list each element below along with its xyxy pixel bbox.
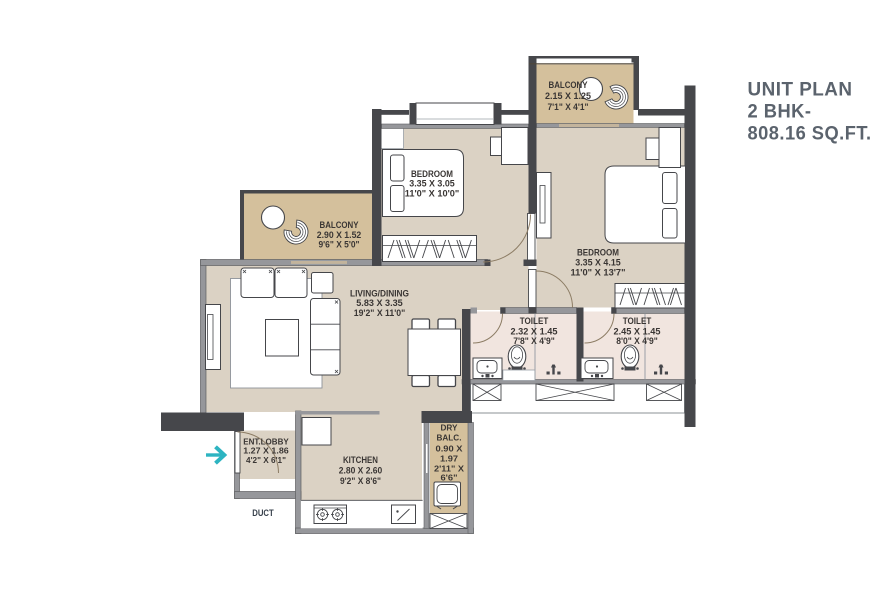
svg-text:11'0" X 10'0": 11'0" X 10'0" xyxy=(405,189,460,199)
svg-text:3.35 X 3.05: 3.35 X 3.05 xyxy=(409,179,455,189)
svg-text:2.90 X 1.52: 2.90 X 1.52 xyxy=(317,230,362,240)
svg-text:BEDROOM: BEDROOM xyxy=(411,169,453,179)
svg-text:BEDROOM: BEDROOM xyxy=(577,248,619,258)
svg-text:5.83 X 3.35: 5.83 X 3.35 xyxy=(356,298,403,308)
svg-text:1.97: 1.97 xyxy=(440,454,458,464)
svg-text:LIVING/DINING: LIVING/DINING xyxy=(350,289,409,299)
svg-text:2.15 X 1.25: 2.15 X 1.25 xyxy=(545,91,591,101)
svg-text:DUCT: DUCT xyxy=(252,508,274,518)
svg-text:2.45 X 1.45: 2.45 X 1.45 xyxy=(614,327,661,337)
svg-text:7'8" X 4'9": 7'8" X 4'9" xyxy=(513,336,555,346)
svg-text:19'2" X 11'0": 19'2" X 11'0" xyxy=(354,308,406,318)
svg-text:BALC.: BALC. xyxy=(437,433,462,443)
svg-text:4'2" X 6'1": 4'2" X 6'1" xyxy=(246,455,286,465)
svg-text:11'0" X 13'7": 11'0" X 13'7" xyxy=(571,268,626,278)
svg-text:DRY: DRY xyxy=(441,423,458,433)
svg-text:8'0" X 4'9": 8'0" X 4'9" xyxy=(616,336,658,346)
svg-text:2.80 X 2.60: 2.80 X 2.60 xyxy=(339,466,383,476)
svg-text:BALCONY: BALCONY xyxy=(549,80,588,90)
svg-text:TOILET: TOILET xyxy=(520,316,549,326)
svg-text:KITCHEN: KITCHEN xyxy=(343,455,378,465)
svg-text:808.16 SQ.FT.: 808.16 SQ.FT. xyxy=(748,123,872,145)
svg-text:2.32 X 1.45: 2.32 X 1.45 xyxy=(511,327,558,337)
svg-text:0.90 X: 0.90 X xyxy=(436,444,463,454)
svg-text:BALCONY: BALCONY xyxy=(320,220,359,230)
svg-text:7'1" X 4'1": 7'1" X 4'1" xyxy=(548,102,589,112)
svg-text:3.35 X 4.15: 3.35 X 4.15 xyxy=(575,258,621,268)
svg-text:2 BHK-: 2 BHK- xyxy=(748,101,812,123)
svg-text:9'2" X 8'6": 9'2" X 8'6" xyxy=(340,476,381,486)
svg-text:6'6": 6'6" xyxy=(441,473,458,483)
svg-text:TOILET: TOILET xyxy=(623,316,652,326)
svg-text:UNIT PLAN: UNIT PLAN xyxy=(748,79,853,101)
svg-text:9'6" X 5'0": 9'6" X 5'0" xyxy=(319,240,360,250)
svg-text:1.27 X 1.86: 1.27 X 1.86 xyxy=(243,446,289,456)
